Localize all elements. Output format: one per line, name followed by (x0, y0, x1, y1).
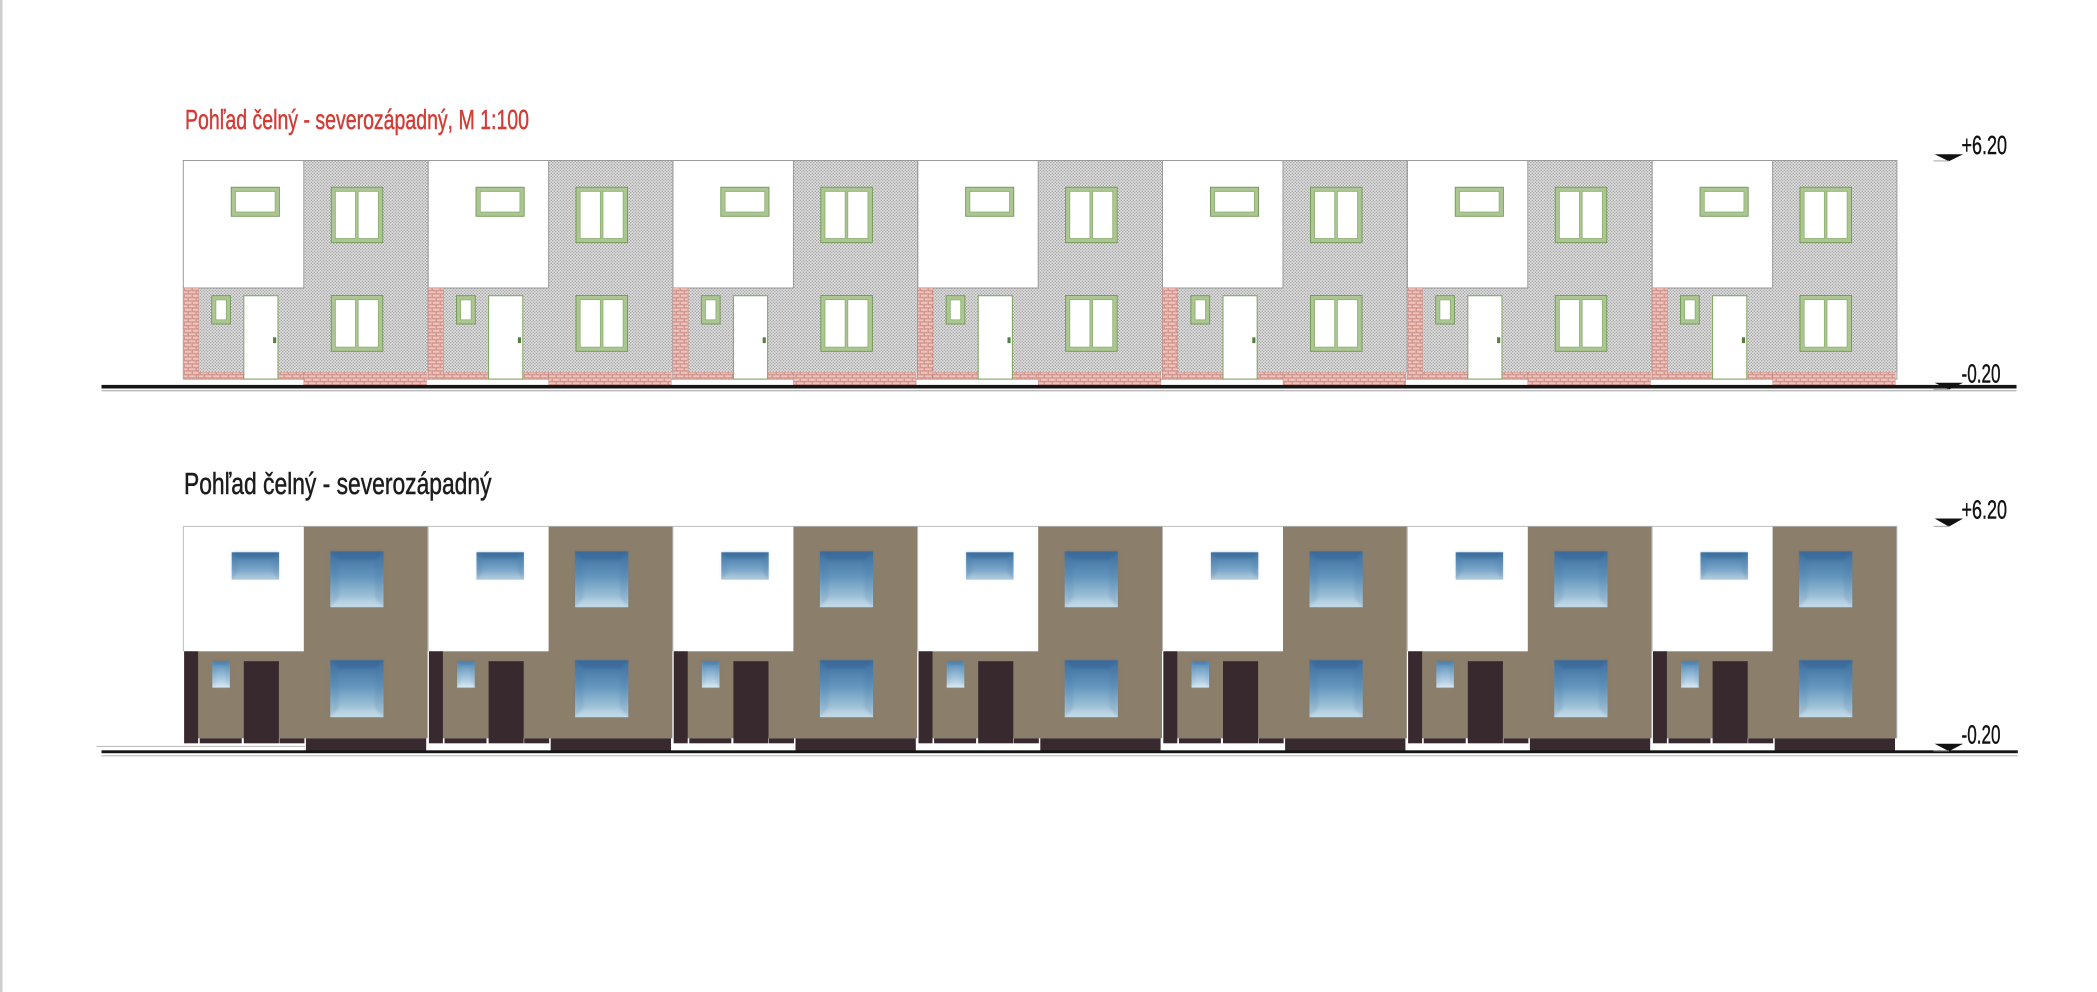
svg-text:-0.20: -0.20 (1962, 361, 2001, 389)
svg-text:+6.20: +6.20 (1962, 496, 2008, 524)
svg-text:+6.20: +6.20 (1962, 132, 2008, 160)
svg-text:-0.20: -0.20 (1962, 722, 2001, 750)
svg-text:Pohľad čelný - severozápadný: Pohľad čelný - severozápadný (184, 467, 492, 501)
svg-text:Pohľad čelný - severozápadný,: Pohľad čelný - severozápadný, M 1:100 (185, 104, 529, 135)
